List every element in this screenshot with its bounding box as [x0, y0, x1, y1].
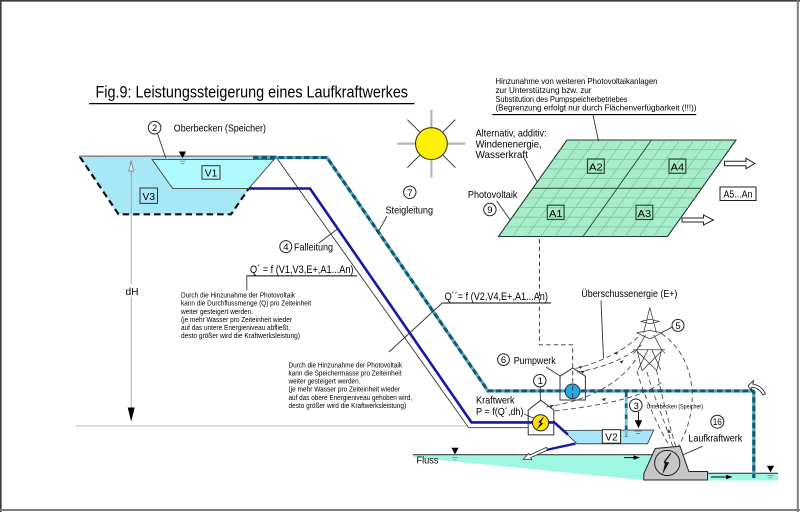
- svg-text:4: 4: [283, 242, 288, 253]
- svg-text:A2: A2: [589, 162, 603, 174]
- svg-text:7: 7: [407, 188, 412, 199]
- svg-text:A3: A3: [638, 208, 652, 220]
- svg-text:6: 6: [501, 355, 506, 366]
- svg-text:Falleitung: Falleitung: [294, 241, 333, 253]
- svg-text:A1: A1: [549, 208, 563, 220]
- svg-text:V1: V1: [205, 168, 218, 179]
- svg-text:Oberbecken (Speicher): Oberbecken (Speicher): [174, 123, 266, 135]
- svg-text:Durch die Hinzunahme der Photo: Durch die Hinzunahme der Photovoltaik: [181, 293, 295, 300]
- svg-text:(je mehr Wasser pro Zeiteinhei: (je mehr Wasser pro Zeiteinheit wieder: [289, 387, 401, 394]
- svg-text:V2: V2: [605, 432, 618, 443]
- svg-text:desto größer wird die Kraftwer: desto größer wird die Kraftwerksleistung…: [289, 403, 407, 410]
- svg-text:5: 5: [675, 321, 680, 332]
- svg-text:Fig.9: Leistungssteigerung ein: Fig.9: Leistungssteigerung eines Laufkra…: [96, 83, 409, 102]
- svg-text:Fluss: Fluss: [417, 454, 439, 466]
- svg-text:A5...An: A5...An: [724, 189, 753, 200]
- svg-text:weiter gesteigert werden.: weiter gesteigert werden.: [180, 309, 253, 316]
- svg-text:3: 3: [634, 401, 639, 412]
- svg-text:dH: dH: [126, 286, 139, 298]
- svg-text:9: 9: [487, 205, 492, 216]
- svg-text:kann die Durchflussmenge (Q) p: kann die Durchflussmenge (Q) pro Zeitein…: [181, 301, 311, 308]
- svg-text:Steigleitung: Steigleitung: [386, 205, 434, 217]
- svg-text:16: 16: [713, 417, 722, 427]
- svg-text:P = f(Q´,dh): P = f(Q´,dh): [476, 406, 524, 418]
- svg-text:auf das obere Energieniveau ge: auf das obere Energieniveau gehoben wird…: [289, 395, 413, 402]
- svg-text:Pumpwerk: Pumpwerk: [514, 355, 557, 367]
- svg-text:1: 1: [538, 376, 543, 387]
- svg-text:Laufkraftwerk: Laufkraftwerk: [688, 432, 742, 444]
- svg-text:Wasserkraft: Wasserkraft: [476, 149, 528, 161]
- svg-text:Durch die Hinzunahme der Photo: Durch die Hinzunahme der Photovoltaik: [289, 362, 403, 369]
- svg-text:V3: V3: [143, 192, 156, 203]
- svg-text:Überschussenergie (E+): Überschussenergie (E+): [581, 288, 677, 300]
- svg-text:Q´´= f (V2,V4,E+,A1...An): Q´´= f (V2,V4,E+,A1...An): [445, 291, 548, 303]
- svg-text:kann die Speichermasse pro Zei: kann die Speichermasse pro Zeiteinheit: [289, 371, 402, 378]
- svg-text:Kraftwerk: Kraftwerk: [476, 394, 515, 406]
- svg-text:Photovoltaik: Photovoltaik: [468, 189, 518, 201]
- svg-text:desto größer wird die Kraftwer: desto größer wird die Kraftwerksleistung…: [181, 333, 300, 340]
- svg-text:Substitution des Pumpspeicherb: Substitution des Pumpspeicherbetriebes: [496, 95, 628, 104]
- svg-text:2: 2: [152, 123, 157, 134]
- svg-text:zur Unterstützung bzw. zur: zur Unterstützung bzw. zur: [496, 86, 592, 95]
- svg-text:(je mehr Wasser pro Zeiteinhei: (je mehr Wasser pro Zeiteinheit wieder: [181, 317, 293, 324]
- svg-text:auf das untere Energieniveau a: auf das untere Energieniveau abfließt,: [181, 325, 290, 332]
- svg-text:Unterbecken (Speicher): Unterbecken (Speicher): [647, 404, 704, 410]
- svg-text:Hinzunahme von weiteren Photov: Hinzunahme von weiteren Photovoltaikanla…: [496, 77, 658, 86]
- svg-text:Q´ = f (V1,V3,E+,A1...An): Q´ = f (V1,V3,E+,A1...An): [250, 264, 354, 276]
- svg-text:(Begrenzung erfolgt nur durch: (Begrenzung erfolgt nur durch Flächenver…: [496, 104, 697, 113]
- svg-text:A4: A4: [671, 162, 685, 174]
- svg-text:weiter gesteigert werden.: weiter gesteigert werden.: [288, 379, 361, 386]
